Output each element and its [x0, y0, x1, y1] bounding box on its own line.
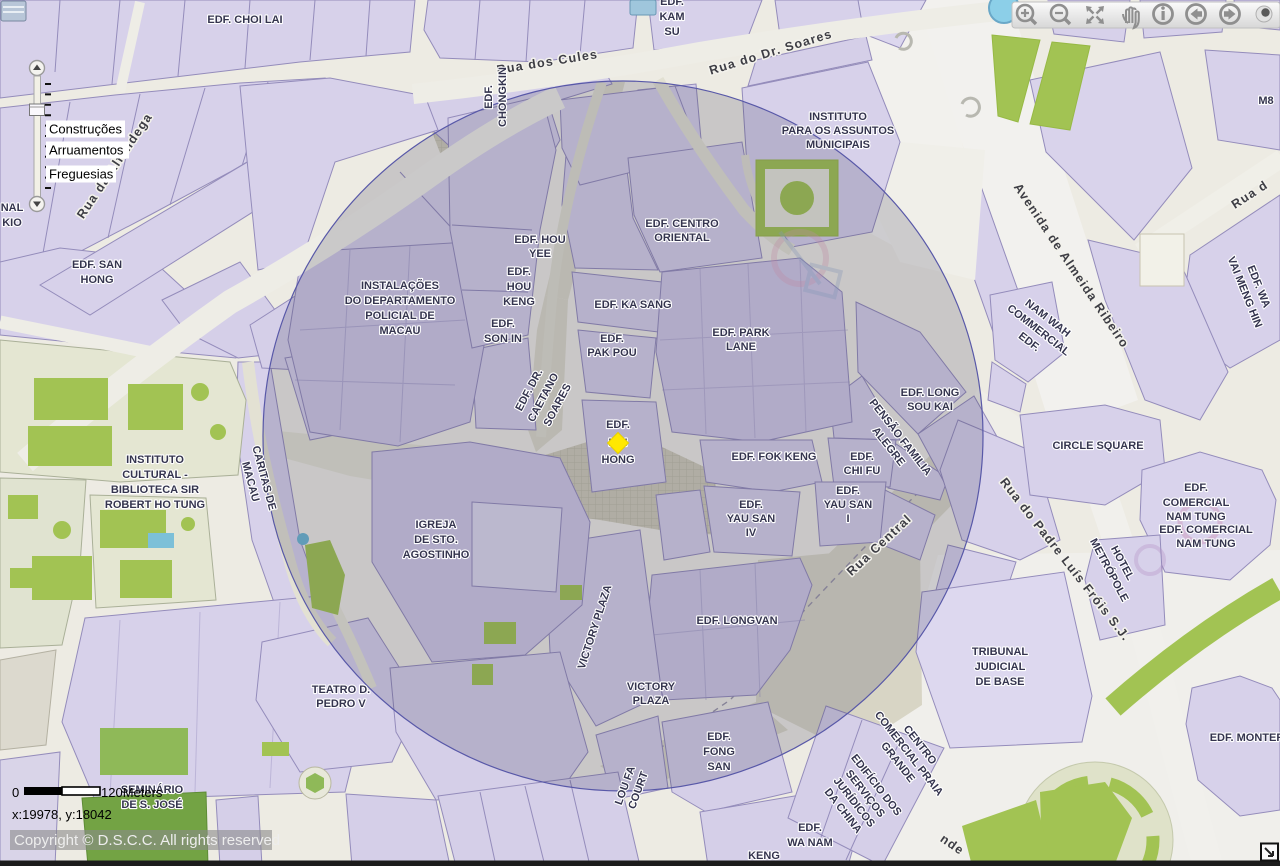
svg-text:COMERCIAL: COMERCIAL: [1163, 497, 1230, 509]
svg-text:EDF.: EDF.: [606, 419, 630, 431]
svg-text:VICTORY: VICTORY: [627, 681, 676, 693]
svg-text:EDF. CENTRO: EDF. CENTRO: [645, 218, 719, 230]
svg-text:Copyright © D.S.C.C. All right: Copyright © D.S.C.C. All rights reserved: [14, 832, 280, 849]
svg-text:HOU: HOU: [507, 281, 532, 293]
svg-text:EDF.: EDF.: [1184, 482, 1208, 494]
svg-text:EDF. COMERCIAL: EDF. COMERCIAL: [1159, 524, 1253, 536]
svg-text:INSTITUTO: INSTITUTO: [809, 111, 867, 123]
svg-text:KENG: KENG: [748, 850, 780, 862]
svg-text:SON IN: SON IN: [484, 333, 522, 345]
svg-text:LANE: LANE: [726, 341, 756, 353]
svg-text:IV: IV: [746, 527, 757, 539]
svg-text:HONG: HONG: [81, 274, 114, 286]
svg-text:CHONGKIN: CHONGKIN: [497, 67, 509, 127]
svg-text:NAL: NAL: [1, 202, 24, 214]
svg-text:NAM TUNG: NAM TUNG: [1176, 538, 1235, 550]
svg-text:MACAU: MACAU: [380, 325, 421, 337]
svg-text:EDF.: EDF.: [739, 499, 763, 511]
svg-text:TEATRO D.: TEATRO D.: [312, 684, 370, 696]
svg-text:INSTALAÇÕES: INSTALAÇÕES: [361, 279, 439, 292]
svg-text:EDF. LONGVAN: EDF. LONGVAN: [696, 615, 777, 627]
svg-text:EDF. PARK: EDF. PARK: [712, 327, 769, 339]
svg-text:PLAZA: PLAZA: [633, 695, 670, 707]
svg-text:INSTITUTO: INSTITUTO: [126, 454, 184, 466]
svg-text:x:19978, y:18042: x:19978, y:18042: [12, 807, 112, 822]
svg-text:MUNICIPAIS: MUNICIPAIS: [806, 139, 870, 151]
svg-text:EDF. SAN: EDF. SAN: [72, 259, 122, 271]
svg-text:EDF.: EDF.: [660, 0, 684, 8]
svg-text:DE BASE: DE BASE: [976, 676, 1025, 688]
svg-text:EDF.: EDF.: [707, 731, 731, 743]
svg-text:IGREJA: IGREJA: [416, 519, 457, 531]
svg-text:YAU SAN: YAU SAN: [824, 499, 873, 511]
svg-text:CIRCLE SQUARE: CIRCLE SQUARE: [1052, 440, 1143, 452]
svg-text:YAU SAN: YAU SAN: [727, 513, 776, 525]
svg-text:PARA OS ASSUNTOS: PARA OS ASSUNTOS: [782, 125, 894, 137]
svg-text:PEDRO V: PEDRO V: [316, 698, 366, 710]
svg-text:EDF.: EDF.: [836, 485, 860, 497]
svg-text:EDF.: EDF.: [483, 85, 495, 109]
svg-text:CHI FU: CHI FU: [844, 465, 881, 477]
svg-text:KIO: KIO: [2, 217, 22, 229]
svg-text:EDF.: EDF.: [507, 266, 531, 278]
svg-text:EDF.: EDF.: [798, 822, 822, 834]
svg-text:EDF.: EDF.: [491, 318, 515, 330]
svg-text:DO DEPARTAMENTO: DO DEPARTAMENTO: [345, 295, 456, 307]
svg-text:SAN: SAN: [707, 761, 730, 773]
svg-text:Arruamentos: Arruamentos: [49, 143, 124, 158]
svg-text:YEE: YEE: [529, 248, 551, 260]
svg-text:PAK POU: PAK POU: [587, 347, 636, 359]
svg-text:120Meters: 120Meters: [101, 785, 163, 800]
svg-text:CULTURAL -: CULTURAL -: [122, 469, 188, 481]
svg-text:KENG: KENG: [503, 296, 535, 308]
svg-text:KAM: KAM: [659, 11, 684, 23]
svg-text:EDF. FOK KENG: EDF. FOK KENG: [732, 451, 817, 463]
svg-text:EDF. MONTER: EDF. MONTER: [1210, 732, 1280, 744]
svg-text:SOU KAI: SOU KAI: [907, 401, 953, 413]
svg-text:EDF. KA SANG: EDF. KA SANG: [594, 299, 671, 311]
svg-text:Construções: Construções: [49, 122, 122, 137]
svg-text:POLICIAL DE: POLICIAL DE: [365, 310, 434, 322]
svg-text:I: I: [846, 513, 849, 525]
svg-text:SU: SU: [664, 26, 679, 38]
svg-text:EDF. HOU: EDF. HOU: [514, 234, 565, 246]
svg-text:WA NAM: WA NAM: [787, 837, 832, 849]
svg-text:M8: M8: [1258, 95, 1273, 107]
svg-text:ORIENTAL: ORIENTAL: [654, 232, 710, 244]
svg-text:TRIBUNAL: TRIBUNAL: [972, 646, 1028, 658]
svg-text:JUDICIAL: JUDICIAL: [975, 661, 1026, 673]
svg-text:ROBERT HO TUNG: ROBERT HO TUNG: [105, 499, 205, 511]
svg-text:NAM TUNG: NAM TUNG: [1166, 511, 1225, 523]
svg-text:FONG: FONG: [703, 746, 735, 758]
svg-text:AGOSTINHO: AGOSTINHO: [403, 549, 470, 561]
svg-text:EDF. CHOI LAI: EDF. CHOI LAI: [207, 14, 282, 26]
svg-text:0: 0: [12, 785, 19, 800]
svg-text:HONG: HONG: [602, 454, 635, 466]
svg-text:BIBLIOTECA SIR: BIBLIOTECA SIR: [111, 484, 199, 496]
svg-text:EDF. LONG: EDF. LONG: [901, 387, 960, 399]
svg-text:EDF.: EDF.: [850, 451, 874, 463]
svg-text:Freguesias: Freguesias: [49, 167, 114, 182]
svg-text:DE STO.: DE STO.: [414, 534, 458, 546]
svg-text:EDF.: EDF.: [600, 333, 624, 345]
